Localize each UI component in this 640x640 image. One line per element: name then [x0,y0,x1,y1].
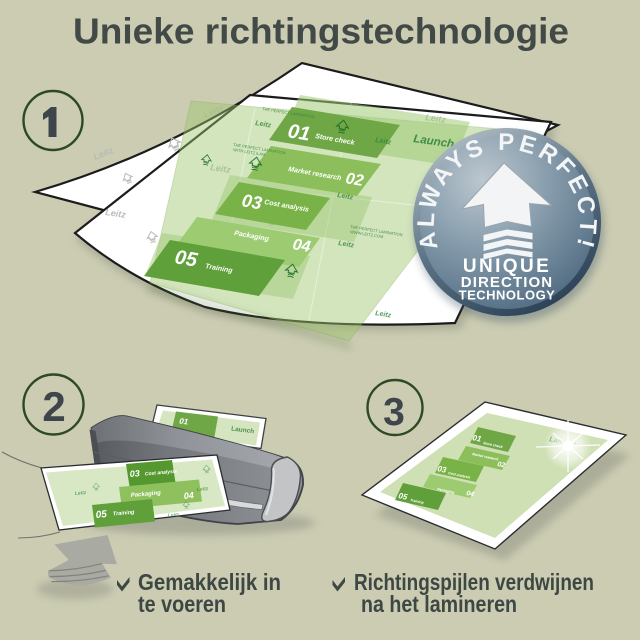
svg-text:04: 04 [183,490,194,501]
svg-text:Leitz: Leitz [168,512,180,519]
svg-text:na het lamineren: na het lamineren [361,591,517,617]
svg-text:04: 04 [291,236,312,256]
svg-text:Leitz: Leitz [75,490,87,497]
svg-text:Leitz: Leitz [197,486,209,493]
svg-text:te voeren: te voeren [138,591,226,617]
svg-text:Unieke richtingstechnologie: Unieke richtingstechnologie [73,11,569,52]
svg-text:05: 05 [95,509,107,521]
svg-text:01: 01 [286,120,312,146]
svg-text:2: 2 [42,383,65,430]
svg-text:TECHNOLOGY: TECHNOLOGY [459,288,556,303]
svg-text:3: 3 [383,391,405,434]
svg-text:03: 03 [240,190,263,213]
svg-text:03: 03 [129,468,140,479]
svg-text:02: 02 [344,170,365,190]
svg-text:01: 01 [179,417,189,427]
